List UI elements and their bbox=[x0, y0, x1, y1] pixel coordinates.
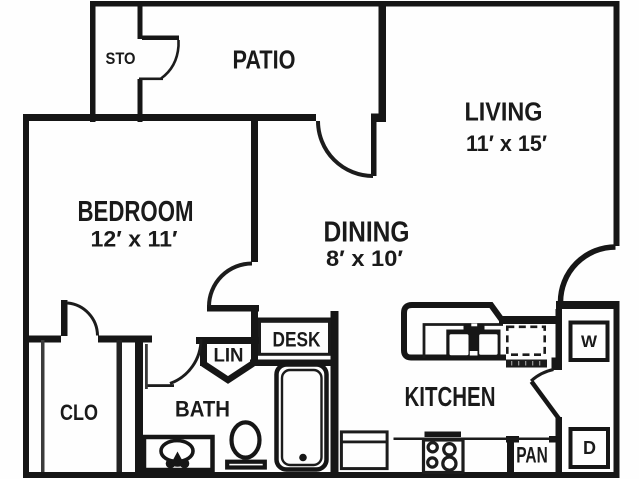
svg-text:KITCHEN: KITCHEN bbox=[405, 381, 496, 412]
svg-text:BATH: BATH bbox=[175, 397, 230, 422]
svg-text:BEDROOM: BEDROOM bbox=[78, 196, 194, 228]
svg-text:LIN: LIN bbox=[214, 346, 244, 367]
svg-text:LIVING: LIVING bbox=[465, 99, 543, 127]
svg-text:DESK: DESK bbox=[273, 329, 321, 352]
svg-text:D: D bbox=[583, 438, 596, 458]
svg-text:11′ x 15′: 11′ x 15′ bbox=[466, 131, 547, 156]
svg-text:CLO: CLO bbox=[60, 400, 98, 425]
svg-text:DINING: DINING bbox=[324, 217, 410, 249]
svg-text:12′ x 11′: 12′ x 11′ bbox=[91, 227, 178, 252]
svg-text:PAN: PAN bbox=[516, 443, 548, 468]
svg-text:STO: STO bbox=[106, 49, 136, 68]
svg-text:PATIO: PATIO bbox=[233, 45, 296, 75]
svg-text:8′ x 10′: 8′ x 10′ bbox=[326, 246, 403, 271]
svg-text:W: W bbox=[581, 332, 598, 351]
